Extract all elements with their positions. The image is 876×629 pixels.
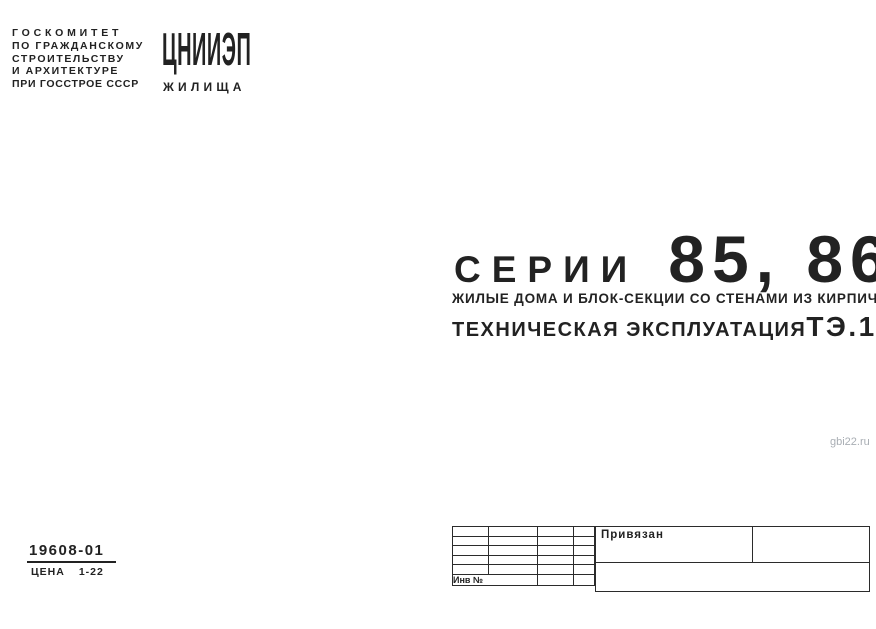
stamp-cell: [488, 555, 538, 565]
stamp-cell: [488, 546, 538, 556]
stamp-cell: [574, 565, 595, 575]
committee-block: ГОСКОМИТЕТ ПО ГРАЖДАНСКОМУ СТРОИТЕЛЬСТВУ…: [12, 27, 144, 91]
committee-line: СТРОИТЕЛЬСТВУ: [12, 53, 144, 66]
cniiep-logo: ЦНИИЭП ЖИЛИЩА: [162, 26, 252, 49]
stamp-left-grid: Инв №: [452, 526, 595, 586]
price-value: 1-22: [79, 566, 104, 578]
doc-title-row: ТЕХНИЧЕСКАЯ ЭКСПЛУАТАЦИЯ ТЭ.1: [452, 311, 866, 343]
stamp-cell: [574, 527, 595, 537]
committee-line: ПО ГРАЖДАНСКОМУ: [12, 40, 144, 53]
stamp-cell: [453, 527, 489, 537]
stamp-annotation-cell: Привязан: [596, 527, 753, 562]
stamp-cell: [453, 546, 489, 556]
stamp-cell: [453, 565, 489, 575]
stamp-cell: [574, 555, 595, 565]
stamp-cell: [538, 527, 574, 537]
series-label: СЕРИИ: [454, 251, 638, 288]
stamp-cell: [488, 536, 538, 546]
price-label: ЦЕНА: [31, 566, 65, 578]
stamp-right-section: Привязан: [595, 526, 870, 592]
stamp-cell: [538, 536, 574, 546]
cniiep-logo-sub: ЖИЛИЩА: [163, 80, 246, 94]
stamp-cell: [538, 555, 574, 565]
stamp-cell: [488, 565, 538, 575]
doc-type: ТЕХНИЧЕСКАЯ ЭКСПЛУАТАЦИЯ: [452, 319, 806, 342]
series-subtitle: ЖИЛЫЕ ДОМА И БЛОК-СЕКЦИИ СО СТЕНАМИ ИЗ К…: [452, 291, 876, 306]
stamp-cell: [574, 536, 595, 546]
stamp-cell: [538, 565, 574, 575]
stamp-cell: [753, 527, 869, 562]
site-watermark: gbi22.ru: [830, 436, 870, 448]
stamp-cell: [488, 527, 538, 537]
cniiep-logo-name: ЦНИИЭП: [162, 26, 251, 79]
doc-code: ТЭ.1: [806, 311, 876, 343]
stamp-cell: [596, 563, 869, 590]
stamp-cell: [538, 546, 574, 556]
stamp-cell: [538, 574, 574, 585]
committee-line: И АРХИТЕКТУРЕ: [12, 65, 144, 78]
catalog-block: 19608-01 ЦЕНА 1-22: [27, 542, 116, 578]
inventory-number-cell: Инв №: [453, 574, 538, 585]
catalog-number: 19608-01: [27, 542, 116, 563]
stamp-cell: [574, 546, 595, 556]
series-title: СЕРИИ 85, 86: [454, 228, 876, 291]
stamp-cell: [453, 536, 489, 546]
committee-line: ПРИ ГОССТРОЕ СССР: [12, 78, 144, 91]
document-page: { "header": { "committee_lines": [ "ГОСК…: [0, 0, 876, 629]
stamp-cell: [574, 574, 595, 585]
stamp-cell: [453, 555, 489, 565]
committee-line: ГОСКОМИТЕТ: [12, 27, 144, 40]
series-numbers: 85, 86: [668, 228, 876, 291]
price-line: ЦЕНА 1-22: [27, 566, 116, 578]
